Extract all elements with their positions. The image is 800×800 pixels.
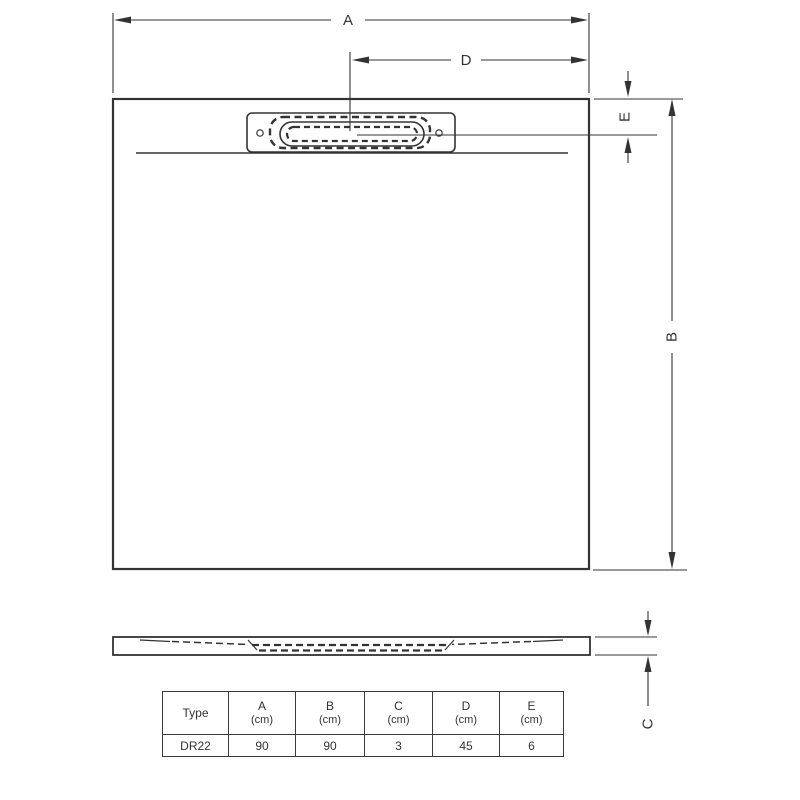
spec-table: Type A (cm) B (cm) C (cm) D (cm) [162, 691, 564, 757]
side-slope-right-dashed [452, 642, 531, 645]
tray-outline-top-view [113, 99, 589, 569]
header-a-unit: (cm) [229, 713, 295, 727]
header-c-label: C [365, 699, 432, 713]
dim-label-e: E [617, 112, 634, 122]
spec-table-header-row: Type A (cm) B (cm) C (cm) D (cm) [163, 692, 564, 735]
header-d-unit: (cm) [433, 713, 499, 727]
header-type-label: Type [163, 706, 228, 720]
side-view [113, 637, 590, 655]
dim-label-d: D [461, 52, 472, 69]
side-slope-left-solid [140, 640, 170, 642]
side-slope-left-dashed [172, 642, 249, 645]
dim-c-arrow-top [645, 620, 652, 636]
dim-c [595, 611, 657, 706]
cell-c-value: 3 [365, 735, 433, 757]
dim-label-b: B [664, 332, 681, 342]
dim-label-a: A [343, 12, 353, 29]
cell-type-value: DR22 [163, 735, 229, 757]
header-b-label: B [296, 699, 364, 713]
header-d-label: D [433, 699, 499, 713]
dim-d-arrow-right [571, 57, 588, 64]
dim-b-arrow-bottom [669, 552, 676, 569]
header-cell-e: E (cm) [500, 692, 564, 735]
spec-table-data-row: DR22 90 90 3 45 6 [163, 735, 564, 757]
dim-d-arrow-left [352, 57, 369, 64]
drawing-canvas: A D E B [0, 0, 800, 800]
header-b-unit: (cm) [296, 713, 364, 727]
dim-e-arrow-top [625, 81, 632, 97]
dim-a-arrow-left [114, 17, 131, 24]
header-cell-a: A (cm) [229, 692, 296, 735]
drain-assembly [247, 113, 455, 152]
dim-label-c: C [640, 718, 657, 729]
header-e-unit: (cm) [500, 713, 563, 727]
header-cell-b: B (cm) [296, 692, 365, 735]
dim-b-arrow-top [669, 99, 676, 116]
cell-d-value: 45 [433, 735, 500, 757]
technical-drawing: A D E B [0, 0, 800, 800]
dim-e-arrow-bottom [625, 137, 632, 153]
cell-e-value: 6 [500, 735, 564, 757]
header-c-unit: (cm) [365, 713, 432, 727]
header-a-label: A [229, 699, 295, 713]
top-view [113, 99, 589, 569]
dim-a-arrow-right [571, 17, 588, 24]
header-cell-c: C (cm) [365, 692, 433, 735]
cell-a-value: 90 [229, 735, 296, 757]
dim-c-arrow-bottom [645, 656, 652, 672]
header-cell-type: Type [163, 692, 229, 735]
cell-b-value: 90 [296, 735, 365, 757]
side-slope-right-solid [533, 640, 563, 642]
header-e-label: E [500, 699, 563, 713]
header-cell-d: D (cm) [433, 692, 500, 735]
